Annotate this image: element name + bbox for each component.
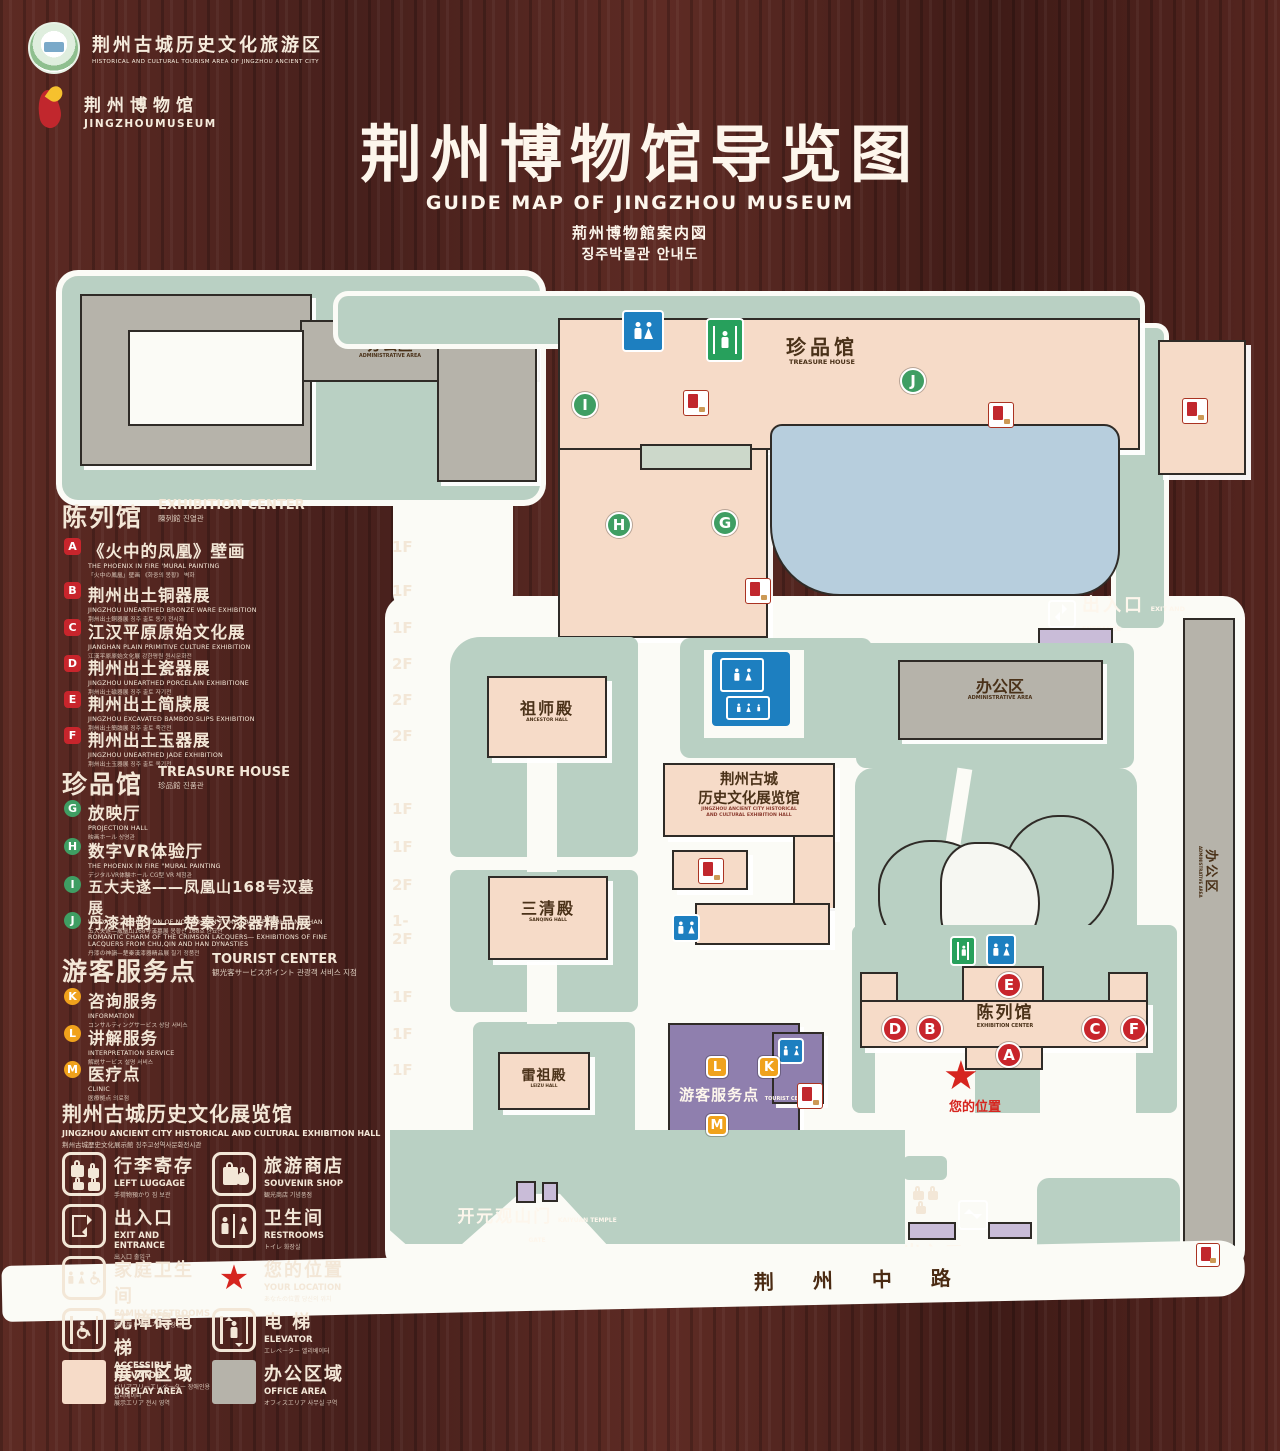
restroom-icon: [622, 310, 664, 352]
legend-item-L: L 讲解服务 INTERPRETATION SERVICE 解説サービス 설명 …: [64, 1025, 384, 1066]
fire-extinguisher-icon: [1196, 1243, 1220, 1267]
map-marker-B: B: [917, 1016, 943, 1042]
page-title-ko: 징주박물관 안내도: [0, 244, 1280, 264]
elevator-icon: [706, 318, 744, 362]
legend-souvenir-shop: 旅游商店 SOUVENIR SHOP 観光商店 기념품점: [212, 1152, 362, 1199]
map-marker-D: D: [882, 1016, 908, 1042]
exhibition-center-court-east: [1040, 1048, 1136, 1114]
exhibition-hall-arm: [793, 835, 835, 911]
exhibition-center-label: 陈列馆 EXHIBITION CENTER: [920, 1004, 1090, 1029]
left-luggage-icon: [62, 1152, 106, 1196]
entrance-gate-bottom: [908, 1222, 956, 1240]
map-marker-M: M: [706, 1114, 728, 1136]
your-location-label: 您的位置: [930, 1096, 1020, 1115]
luggage-scanner-icon: [906, 1180, 946, 1220]
exit-entrance-icon-bottom: [958, 1200, 988, 1230]
legend-item-G: G 放映厅 PROJECTION HALL 映画ホール 상영관 1F: [64, 800, 384, 841]
family-restroom-icon: [726, 696, 770, 720]
your-location-star-icon: ★: [212, 1256, 256, 1300]
map-marker-I: I: [572, 392, 598, 418]
central-restroom-icon: [712, 652, 790, 726]
gate-pillar: [516, 1181, 536, 1203]
map-marker-J: J: [900, 368, 926, 394]
temple-gate-label: 开元观山门 KAIYUAN TEMPLE GATE: [452, 1208, 622, 1246]
legend-hall-title: 荆州古城历史文化展览馆 JINGZHOU ANCIENT CITY HISTOR…: [62, 1098, 392, 1149]
legend-section-tourist-center: 游客服务点 TOURIST CENTER 観光客サービスポイント 관광객 서비스…: [62, 952, 357, 988]
map-marker-K: K: [758, 1056, 780, 1078]
guide-map-poster: 荆州古城历史文化旅游区 HISTORICAL AND CULTURAL TOUR…: [0, 0, 1280, 1451]
treasure-inner-court: [640, 444, 752, 470]
tourism-area-logo-subtitle: HISTORICAL AND CULTURAL TOURISM AREA OF …: [92, 59, 323, 65]
exit-entrance-icon: [62, 1204, 106, 1248]
fire-extinguisher-icon: [988, 402, 1014, 428]
legend-item-M: M 医疗点 CLINIC 医療拠点 의료점 1F: [64, 1061, 384, 1102]
exhibition-center-wing-west: [860, 972, 898, 1002]
legend-your-location: ★ 您的位置 YOUR LOCATION あなたの位置 당신의 위치: [212, 1256, 362, 1303]
office-area-swatch: [212, 1360, 256, 1404]
legend-item-F: F 荆州出土玉器展 JINGZHOU UNEARTHED JADE EXHIBI…: [64, 727, 384, 768]
page-title-en: GUIDE MAP OF JINGZHOU MUSEUM: [0, 192, 1280, 214]
exhibition-center-wing-east: [1108, 972, 1148, 1002]
exit-entrance-icon-top: [1048, 600, 1076, 628]
legend-item-A: A 《火中的凤凰》壁画 THE PHOENIX IN FIRE 'MURAL P…: [64, 538, 384, 579]
office-courtyard: [128, 330, 304, 426]
page-title: 荆州博物馆导览图: [0, 104, 1280, 194]
legend-office-area: 办公区域 OFFICE AREA オフィスエリア 사무실 구역: [212, 1360, 362, 1407]
fire-extinguisher-icon: [683, 390, 709, 416]
exhibition-hall-label: 荆州古城 历史文化展览馆 JINGZHOU ANCIENT CITY HISTO…: [663, 770, 835, 818]
tourism-area-logo-title: 荆州古城历史文化旅游区: [92, 31, 323, 57]
southeast-grounds-small: [903, 1156, 947, 1180]
legend-elevator: 电 梯 ELEVATOR エレベーター 엘리베이터: [212, 1308, 362, 1355]
fire-extinguisher-icon: [1182, 398, 1208, 424]
fire-extinguisher-icon: [745, 578, 771, 604]
legend-section-exhibition-center: 陈列馆 EXHIBITION CENTER 陳列館 진열관: [62, 498, 305, 534]
legend-item-C: C 江汉平原原始文化展 JIANGHAN PLAIN PRIMITIVE CUL…: [64, 619, 384, 660]
restrooms-icon: [212, 1204, 256, 1248]
page-title-ja: 荊州博物館案内図: [0, 222, 1280, 243]
admin-right-label: 办公区 ADMINISTRATIVE AREA: [910, 678, 1090, 702]
legend-item-E: E 荆州出土简牍展 JINGZHOU EXCAVATED BAMBOO SLIP…: [64, 691, 384, 732]
restroom-icon: [720, 658, 764, 692]
tourism-area-logo-icon: [28, 22, 80, 74]
legend-left-luggage: 行李寄存 LEFT LUGGAGE 手荷物預かり 짐 보관: [62, 1152, 212, 1199]
road-label: 荆 州 中 路: [754, 1262, 967, 1295]
display-area-swatch: [62, 1360, 106, 1404]
admin-strip-label: 办公区 ADMINISTRATIVE AREA: [1197, 846, 1221, 898]
map-marker-F: F: [1121, 1016, 1147, 1042]
map-marker-E: E: [996, 972, 1022, 998]
hall-corridor: [527, 756, 557, 872]
legend-section-treasure-house: 珍品馆 TREASURE HOUSE 珍品館 진품관: [62, 765, 290, 801]
restroom-icon: [986, 934, 1016, 966]
legend-restrooms: 卫生间 RESTROOMS トイレ 화장실: [212, 1204, 362, 1251]
map-marker-A: A: [996, 1042, 1022, 1068]
tourism-area-logo: 荆州古城历史文化旅游区 HISTORICAL AND CULTURAL TOUR…: [28, 22, 323, 74]
ancestor-hall-label: 祖师殿 ANCESTOR HALL: [487, 700, 607, 724]
legend-item-B: B 荆州出土铜器展 JINGZHOU UNEARTHED BRONZE WARE…: [64, 582, 384, 623]
exhibition-hall-bar: [695, 903, 830, 945]
map-marker-G: G: [712, 510, 738, 536]
legend-item-D: D 荆州出土瓷器展 JINGZHOU UNEARTHED PORCELAIN E…: [64, 655, 384, 696]
legend-item-J: J 丹漆神韵——楚秦汉漆器精品展 ROMANTIC CHARM OF THE C…: [64, 912, 384, 957]
treasure-house-wing: [558, 448, 768, 638]
restroom-icon: [778, 1038, 804, 1064]
wheelchair-icon: [88, 1270, 103, 1286]
map-marker-L: L: [706, 1056, 728, 1078]
accessible-elevator-icon: [62, 1308, 106, 1352]
fire-extinguisher-icon: [698, 858, 724, 884]
legend-item-K: K 咨询服务 INFORMATION コンサルティングサービス 상담 서비스 1…: [64, 988, 384, 1029]
gate-pillar: [542, 1182, 558, 1202]
elevator-legend-icon: [212, 1308, 256, 1352]
entrance-gate-bottom: [988, 1222, 1032, 1239]
family-restrooms-icon: [62, 1256, 106, 1300]
legend-item-H: H 数字VR体验厅 THE PHOENIX IN FIRE "MURAL PAI…: [64, 838, 384, 879]
fire-extinguisher-icon: [797, 1083, 823, 1109]
museum-pond: [770, 424, 1120, 596]
elevator-icon: [950, 936, 976, 966]
admin-strip-building: [1183, 618, 1235, 1273]
your-location-star: ★: [943, 1056, 979, 1096]
legend-exit-entrance: 出入口 EXIT AND ENTRANCE 出入口 출입구: [62, 1204, 212, 1261]
legend-display-area: 展示区域 DISPLAY AREA 展示エリア 전시 영역: [62, 1360, 212, 1407]
sanqing-hall-label: 三清殿 SANQING HALL: [488, 900, 608, 924]
restroom-icon: [672, 914, 700, 942]
map-marker-C: C: [1082, 1016, 1108, 1042]
leizu-hall-label: 雷祖殿 LEIZU HALL: [498, 1066, 590, 1089]
souvenir-shop-icon: [212, 1152, 256, 1196]
treasure-house-label: 珍品馆 TREASURE HOUSE: [742, 336, 902, 366]
map-marker-H: H: [606, 512, 632, 538]
hall-corridor: [527, 962, 557, 1024]
wheelchair-icon: [74, 1320, 94, 1340]
